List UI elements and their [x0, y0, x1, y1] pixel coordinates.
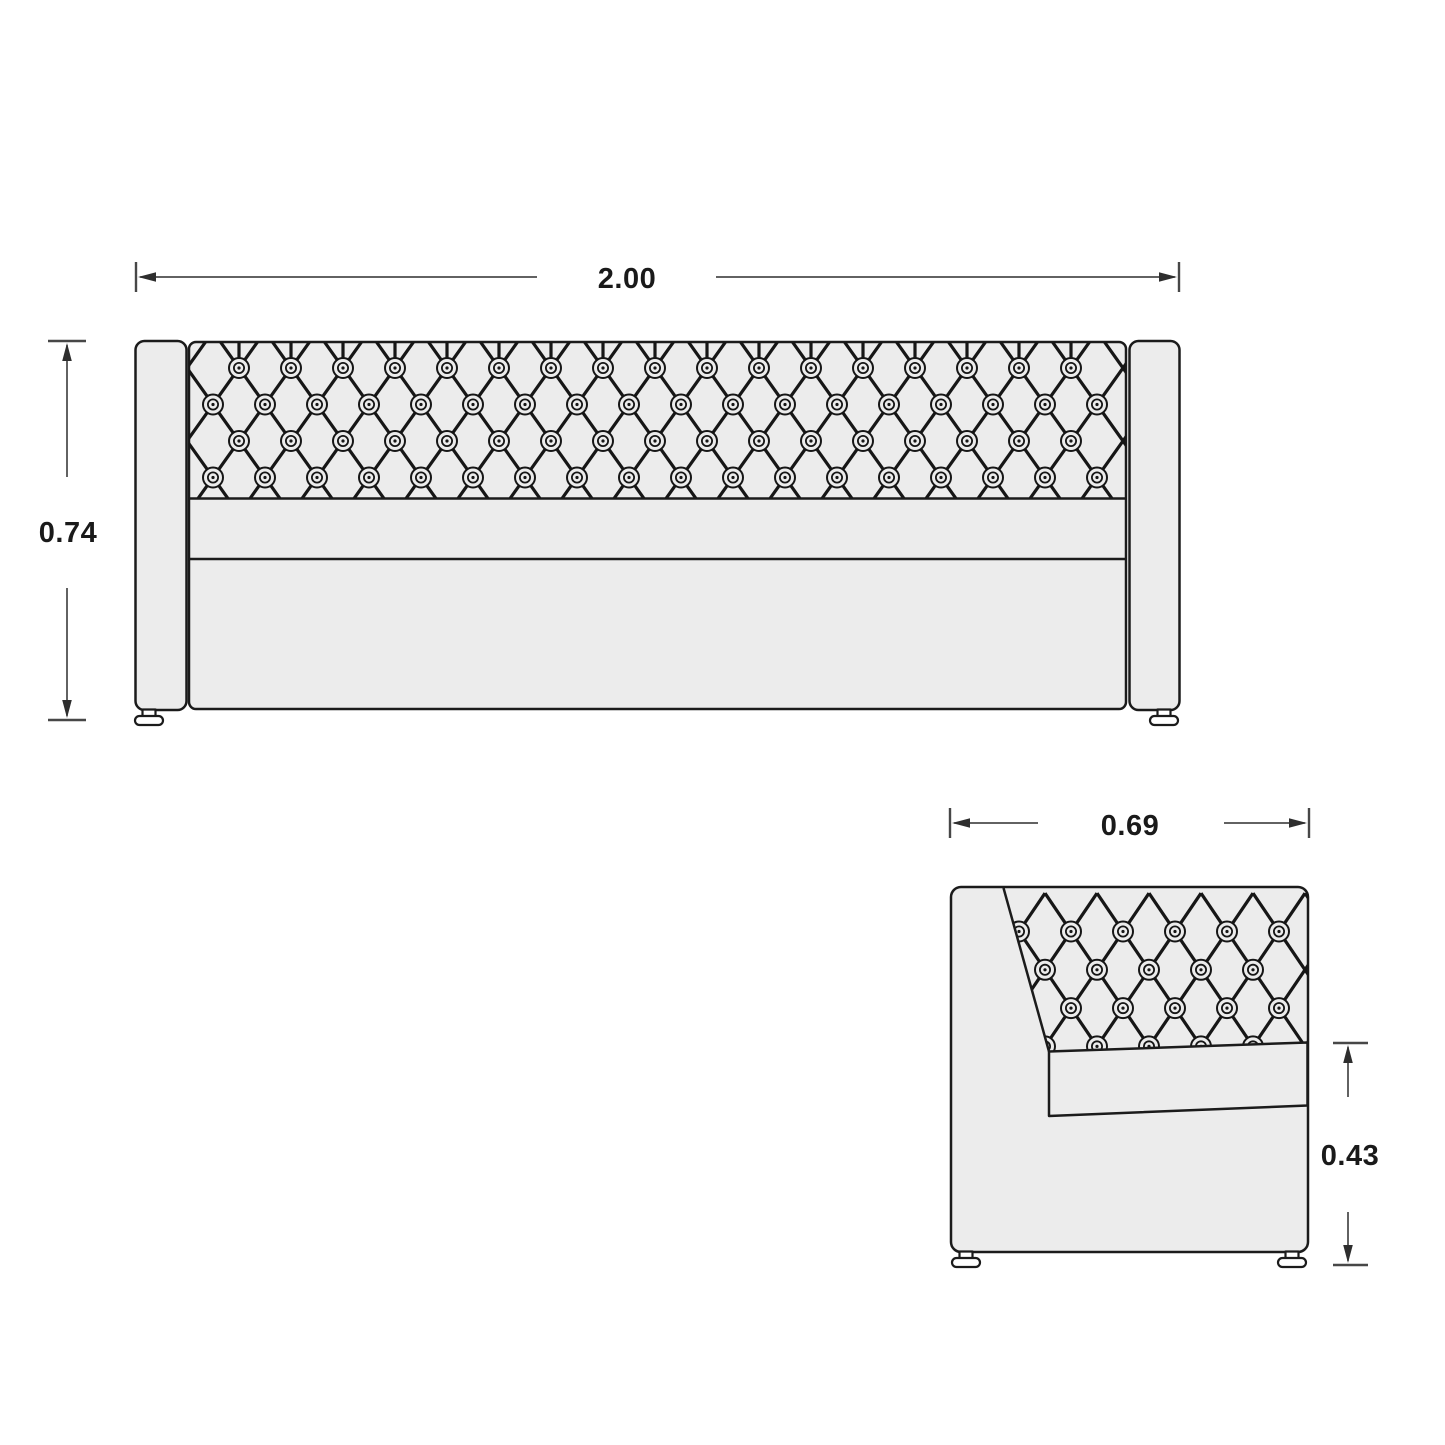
- tufting-button-dot: [1225, 1007, 1228, 1010]
- tufting-button-dot: [679, 403, 682, 406]
- tufting-button-dot: [913, 439, 916, 442]
- tufting-diagonal: [1357, 893, 1445, 1069]
- tufting-button-dot: [497, 439, 500, 442]
- tufting-button-dot: [861, 366, 864, 369]
- tufting-diagonal: [12, 341, 132, 509]
- dimension-front-width: 2.00: [136, 262, 1179, 295]
- tufting-button-dot: [315, 403, 318, 406]
- tufting-button-dot: [913, 366, 916, 369]
- tufting-button-dot: [1043, 968, 1046, 971]
- tufting-button-dot: [445, 366, 448, 369]
- tufting-button-dot: [731, 476, 734, 479]
- tufting-button-dot: [471, 476, 474, 479]
- tufting-button-dot: [1225, 930, 1228, 933]
- tufting-button-dot: [315, 476, 318, 479]
- side-back-foot: [952, 1252, 980, 1268]
- arrowhead-up: [1343, 1045, 1353, 1063]
- tufting-button-dot: [263, 403, 266, 406]
- arrowhead-left: [138, 272, 156, 282]
- tufting-button-dot: [1147, 968, 1150, 971]
- tufting-button-dot: [575, 476, 578, 479]
- tufting-button-dot: [1121, 1007, 1124, 1010]
- tufting-button-dot: [1277, 1007, 1280, 1010]
- tufting-button-dot: [1095, 968, 1098, 971]
- tufting-button-dot: [1095, 476, 1098, 479]
- front-height-label: 0.74: [39, 517, 97, 549]
- tufting-button-dot: [1095, 403, 1098, 406]
- dimension-side-depth: 0.69: [950, 808, 1309, 842]
- tufting-button-dot: [1251, 968, 1254, 971]
- tufting-button-dot: [1043, 476, 1046, 479]
- tufting-button-dot: [861, 439, 864, 442]
- tufting-button-dot: [1069, 930, 1072, 933]
- tufting-diagonal: [837, 893, 957, 1069]
- arrowhead-right: [1289, 818, 1307, 828]
- tufting-button-dot: [419, 403, 422, 406]
- tufting-button-dot: [1173, 930, 1176, 933]
- tufting-button-dot: [757, 366, 760, 369]
- tufting-button-dot: [653, 439, 656, 442]
- tufting-button-dot: [1277, 930, 1280, 933]
- tufting-button-dot: [783, 403, 786, 406]
- tufting-button-dot: [965, 439, 968, 442]
- tufting-button-dot: [627, 476, 630, 479]
- dimension-seat-height: 0.43: [1321, 1043, 1379, 1265]
- tufting-button-dot: [237, 439, 240, 442]
- tufting-button-dot: [1095, 1045, 1098, 1048]
- tufting-button-dot: [367, 476, 370, 479]
- tufting-button-dot: [653, 366, 656, 369]
- dimension-front-height: 0.74: [39, 341, 97, 720]
- front-right-foot: [1150, 710, 1178, 726]
- front-view: [0, 341, 1275, 725]
- tufting-button-dot: [1069, 439, 1072, 442]
- tufting-button-dot: [601, 439, 604, 442]
- tufting-button-dot: [835, 403, 838, 406]
- tufting-button-dot: [1069, 366, 1072, 369]
- tufting-button-dot: [549, 366, 552, 369]
- side-depth-label: 0.69: [1101, 810, 1159, 842]
- tufting-button-dot: [211, 476, 214, 479]
- tufting-button-dot: [1017, 366, 1020, 369]
- tufting-button-dot: [1017, 930, 1020, 933]
- front-width-label: 2.00: [598, 263, 656, 295]
- front-left-foot: [135, 710, 163, 726]
- tufting-button-dot: [705, 439, 708, 442]
- tufting-button-dot: [939, 403, 942, 406]
- side-view: [769, 887, 1445, 1267]
- tufting-button-dot: [1199, 968, 1202, 971]
- tufting-button-dot: [341, 439, 344, 442]
- tufting-button-dot: [1043, 403, 1046, 406]
- side-front-foot: [1278, 1252, 1306, 1268]
- arrowhead-up: [62, 343, 72, 361]
- tufting-button-dot: [549, 439, 552, 442]
- tufting-button-dot: [601, 366, 604, 369]
- tufting-diagonal: [0, 341, 51, 509]
- tufting-button-dot: [289, 366, 292, 369]
- tufting-button-dot: [419, 476, 422, 479]
- tufting-button-dot: [991, 476, 994, 479]
- drawing-canvas: 2.00 0.74 0.69 0.43: [0, 0, 1445, 1445]
- tufting-button-dot: [705, 366, 708, 369]
- tufting-button-dot: [835, 476, 838, 479]
- tufting-button-dot: [991, 403, 994, 406]
- tufting-button-dot: [393, 366, 396, 369]
- tufting-diagonal: [0, 341, 102, 509]
- tufting-button-dot: [627, 403, 630, 406]
- tufting-button-dot: [263, 476, 266, 479]
- sofa-technical-drawing: 2.00 0.74 0.69 0.43: [0, 0, 1445, 1445]
- tufting-button-dot: [965, 366, 968, 369]
- tufting-button-dot: [731, 403, 734, 406]
- tufting-button-dot: [887, 403, 890, 406]
- arrowhead-down: [62, 700, 72, 718]
- tufting-button-dot: [939, 476, 942, 479]
- tufting-button-dot: [757, 439, 760, 442]
- arrowhead-right: [1159, 272, 1177, 282]
- tufting-button-dot: [809, 366, 812, 369]
- tufting-button-dot: [341, 366, 344, 369]
- tufting-button-dot: [575, 403, 578, 406]
- tufting-button-dot: [1121, 930, 1124, 933]
- front-left-armrest: [136, 341, 187, 710]
- side-seat-cushion: [1049, 1043, 1308, 1117]
- tufting-button-dot: [393, 439, 396, 442]
- tufting-button-dot: [211, 403, 214, 406]
- arrowhead-left: [952, 818, 970, 828]
- tufting-button-dot: [809, 439, 812, 442]
- tufting-button-dot: [783, 476, 786, 479]
- arrowhead-down: [1343, 1245, 1353, 1263]
- tufting-button-dot: [1017, 439, 1020, 442]
- tufting-button-dot: [289, 439, 292, 442]
- tufting-button-dot: [679, 476, 682, 479]
- tufting-button-dot: [445, 439, 448, 442]
- tufting-button-dot: [497, 366, 500, 369]
- tufting-button-dot: [523, 403, 526, 406]
- tufting-button-dot: [887, 476, 890, 479]
- tufting-button-dot: [471, 403, 474, 406]
- tufting-button-dot: [237, 366, 240, 369]
- tufting-button-dot: [367, 403, 370, 406]
- front-right-armrest: [1130, 341, 1180, 710]
- tufting-button-dot: [1173, 1007, 1176, 1010]
- tufting-diagonal: [821, 893, 941, 1069]
- tufting-button-dot: [523, 476, 526, 479]
- tufting-button-dot: [1069, 1007, 1072, 1010]
- tufting-diagonal: [769, 893, 889, 1069]
- seat-height-label: 0.43: [1321, 1140, 1379, 1172]
